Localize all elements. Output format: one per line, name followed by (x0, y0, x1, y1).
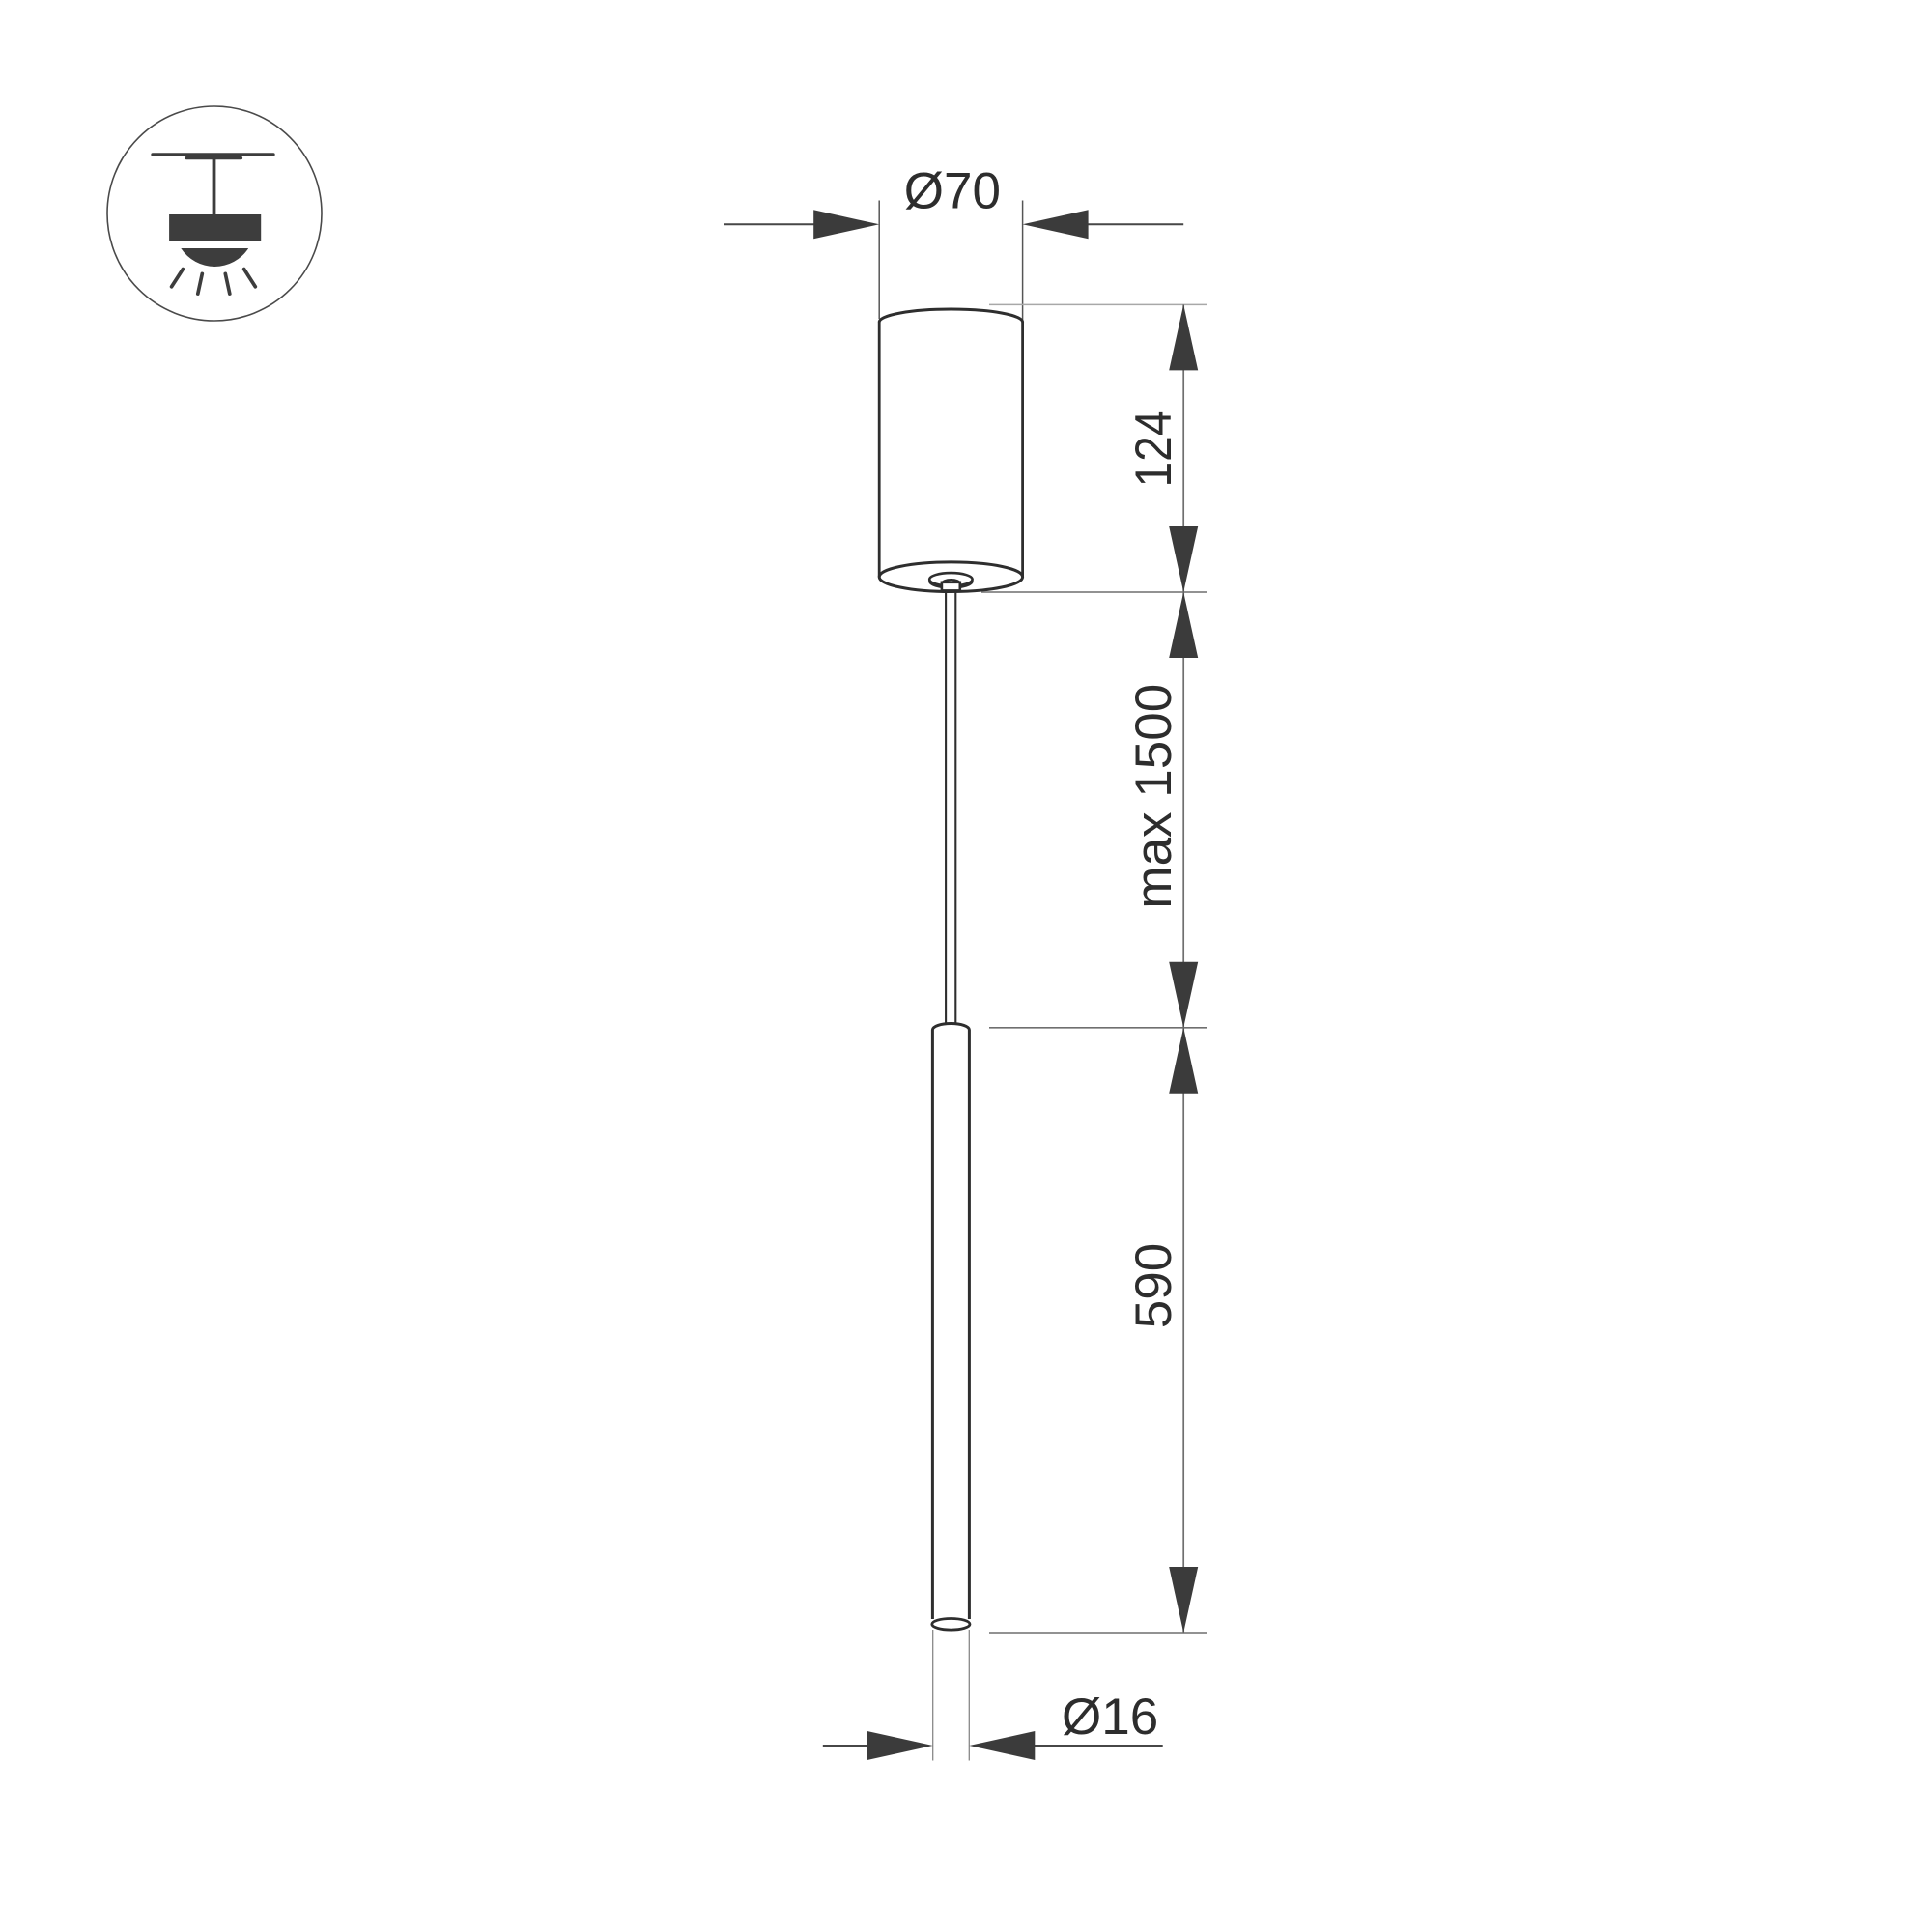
svg-text:Ø70: Ø70 (904, 163, 1001, 220)
svg-text:Ø16: Ø16 (1062, 1689, 1158, 1746)
svg-text:590: 590 (1125, 1243, 1182, 1328)
svg-text:124: 124 (1125, 411, 1182, 488)
svg-text:max 1500: max 1500 (1125, 684, 1182, 909)
